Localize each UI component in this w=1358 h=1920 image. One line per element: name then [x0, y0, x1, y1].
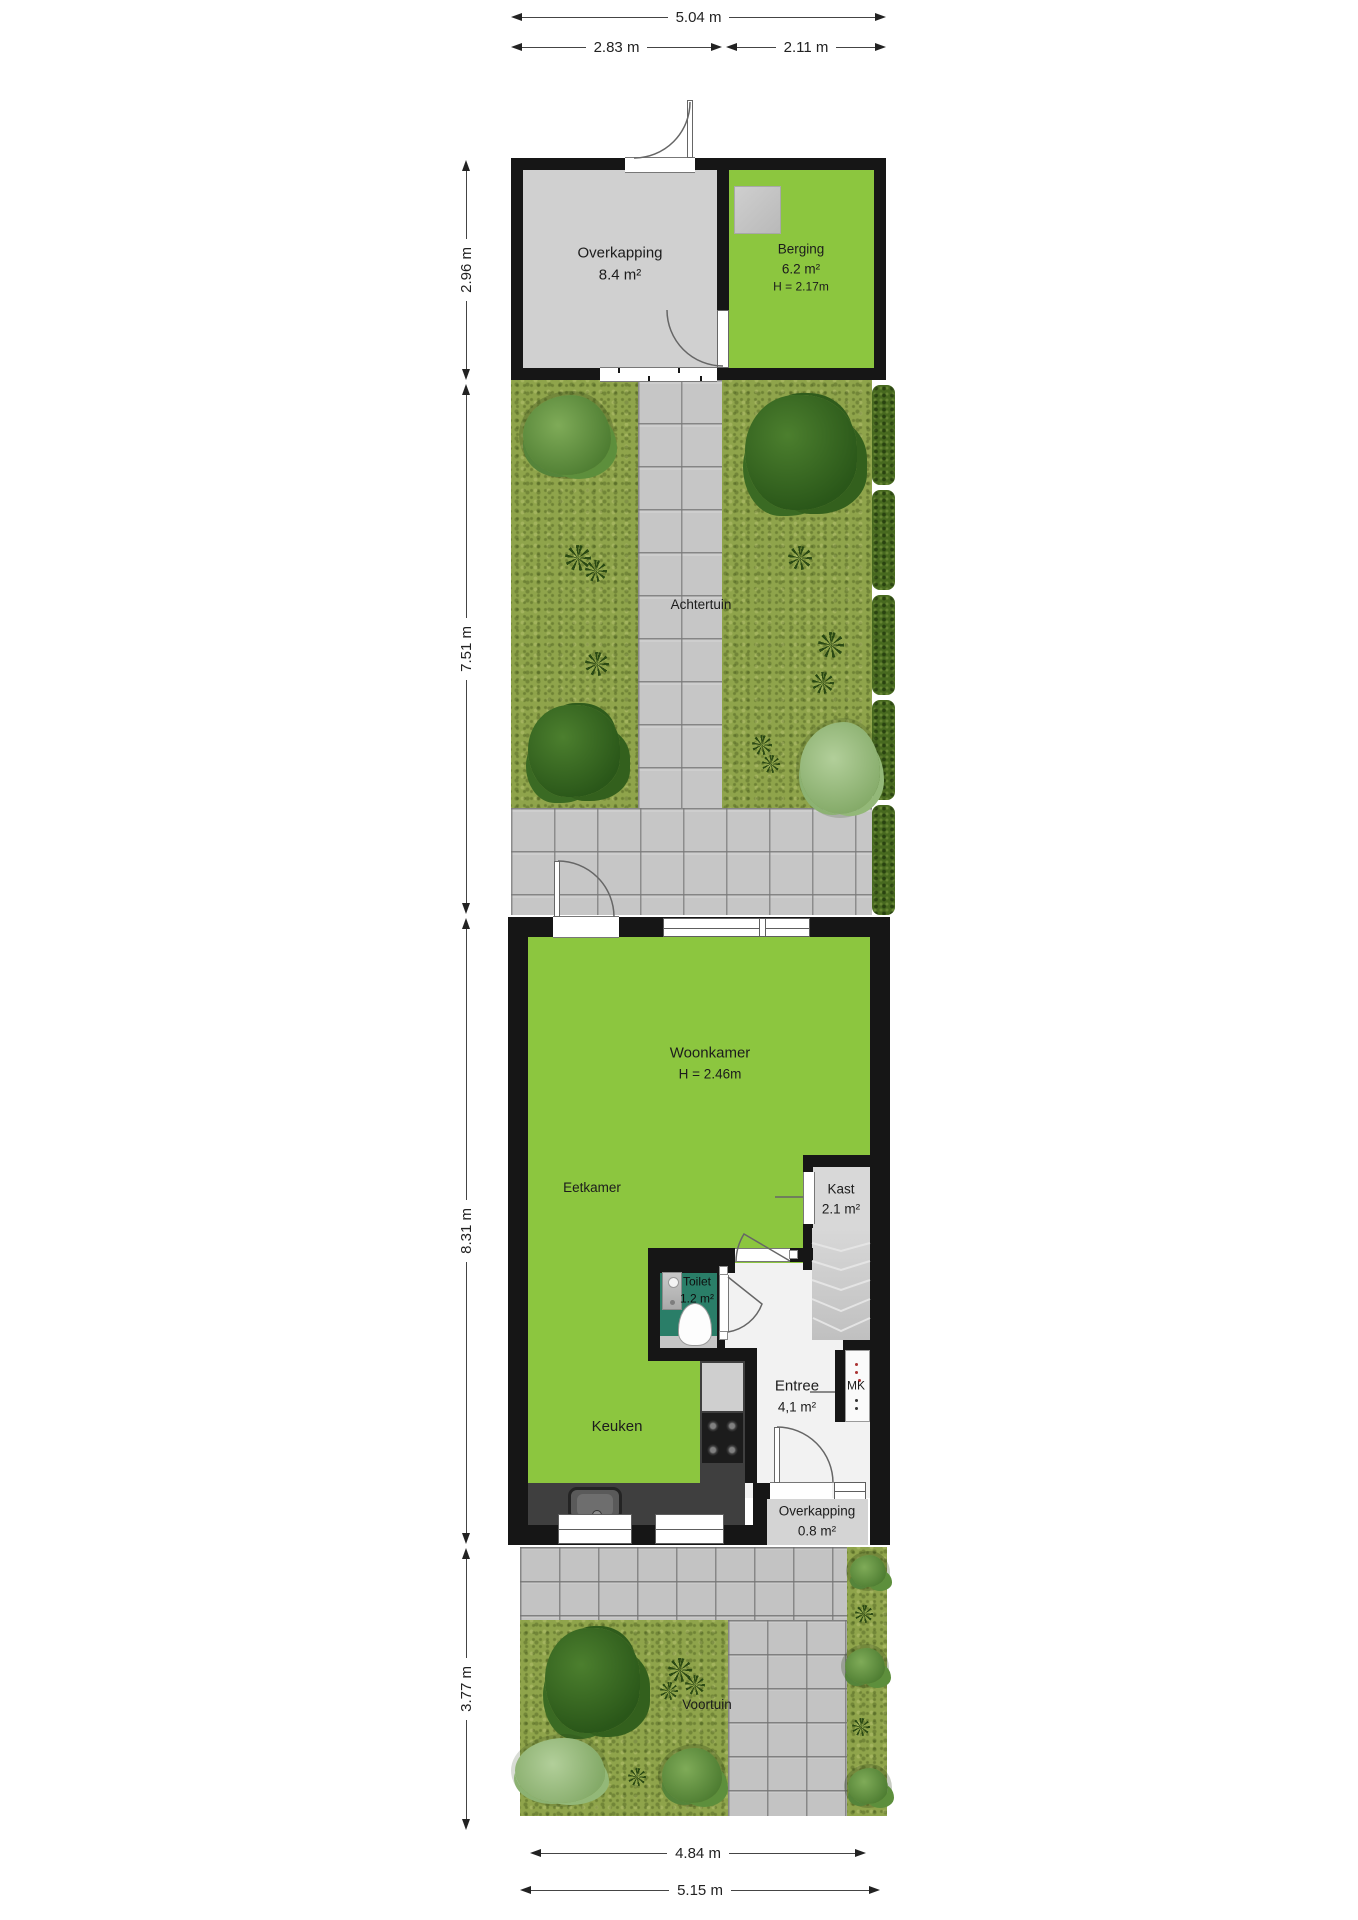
living-room-window	[663, 918, 810, 937]
house-wall-right	[870, 917, 890, 1545]
fern-plant	[800, 722, 880, 814]
room-label-entree: Entree 4,1 m²	[775, 1375, 819, 1416]
room-label-achtertuin: Achtertuin	[671, 595, 732, 615]
dim-left-voortuin: 3.77 m	[455, 1548, 477, 1830]
dim-label: 4.84 m	[667, 1845, 729, 1862]
arrow-right-icon	[875, 43, 886, 51]
shed-wall-right	[874, 158, 886, 380]
back-door-leaf	[554, 861, 560, 917]
window-mullion	[759, 919, 766, 936]
floorplan-canvas: 5.04 m 2.83 m 2.11 m 2.96 m 7.51 m 8.31 …	[0, 0, 1358, 1920]
arrow-right-icon	[869, 1886, 880, 1894]
kitchen-counter-vertical	[700, 1361, 745, 1483]
room-label-voortuin: Voortuin	[682, 1695, 732, 1715]
stair-wall-stub	[843, 1340, 870, 1350]
grass-tuft	[852, 1718, 870, 1736]
room-label-mk: MK	[847, 1377, 865, 1394]
plant	[848, 1768, 888, 1804]
dim-top-total: 5.04 m	[511, 10, 886, 24]
room-label-eetkamer: Eetkamer	[563, 1178, 621, 1198]
berging-door-leaf	[717, 310, 729, 368]
grass-tuft	[628, 1768, 646, 1786]
arrow-right-icon	[711, 43, 722, 51]
grass-tuft	[585, 652, 609, 676]
front-path-top	[520, 1547, 847, 1620]
arrow-down-icon	[462, 903, 470, 914]
arrow-down-icon	[462, 1533, 470, 1544]
dim-label: 8.31 m	[458, 1200, 475, 1262]
arrow-down-icon	[462, 1819, 470, 1830]
shed-wall-bottom	[717, 368, 886, 380]
shed-open-side	[600, 367, 717, 382]
woonkamer-entree-doorway	[735, 1248, 790, 1262]
dim-label: 2.83 m	[586, 39, 648, 56]
grass-tuft	[855, 1605, 873, 1623]
toilet-doorway	[719, 1275, 729, 1332]
garden-terrace	[511, 808, 872, 915]
kitchen-window	[558, 1514, 632, 1544]
plant	[662, 1748, 722, 1803]
kast-wall-top	[803, 1155, 870, 1167]
front-door-leaf	[774, 1427, 780, 1483]
sink-bowl-icon	[668, 1277, 679, 1288]
arrow-up-icon	[462, 384, 470, 395]
worktop	[702, 1363, 743, 1411]
grass-tuft	[660, 1682, 678, 1700]
dim-left-achtertuin: 7.51 m	[455, 384, 477, 914]
arrow-down-icon	[462, 369, 470, 380]
dim-label: 5.04 m	[668, 9, 730, 26]
dim-top-right: 2.11 m	[726, 40, 886, 54]
toilet-wall-bottom	[648, 1348, 757, 1361]
shed-wall-top	[511, 158, 886, 170]
bush	[528, 705, 620, 797]
front-path-side	[728, 1620, 847, 1816]
tap-icon	[670, 1300, 675, 1305]
bush	[745, 395, 857, 510]
dim-label: 2.96 m	[458, 239, 475, 301]
kitchen-window	[655, 1514, 724, 1544]
bush	[545, 1628, 640, 1733]
grass-tuft	[762, 755, 780, 773]
house-wall-bottom	[508, 1525, 770, 1545]
arrow-right-icon	[875, 13, 886, 21]
arrow-left-icon	[511, 13, 522, 21]
arrow-up-icon	[462, 918, 470, 929]
door-jamb	[789, 1250, 798, 1259]
grass-tuft	[812, 672, 834, 694]
arrow-right-icon	[855, 1849, 866, 1857]
shed-wall-bottom	[511, 368, 600, 380]
dim-label: 5.15 m	[669, 1882, 731, 1899]
dim-top-left: 2.83 m	[511, 40, 722, 54]
room-label-toilet: Toilet 1.2 m²	[680, 1274, 714, 1309]
storage-box	[734, 186, 781, 234]
mk-wall	[835, 1350, 845, 1422]
kast-door	[803, 1172, 815, 1224]
grass-tuft	[685, 1675, 705, 1695]
room-label-berging: Berging 6.2 m² H = 2.17m	[773, 240, 829, 297]
fern-plant	[515, 1738, 605, 1803]
dim-left-house: 8.31 m	[455, 918, 477, 1544]
keuken-entree-wall	[745, 1361, 757, 1483]
shed-wall-left	[511, 158, 523, 380]
arrow-left-icon	[530, 1849, 541, 1857]
back-door-threshold	[553, 916, 619, 938]
grass-tuft	[818, 632, 844, 658]
arrow-up-icon	[462, 1548, 470, 1559]
room-label-overkapping-top: Overkapping 8.4 m²	[577, 242, 662, 286]
room-label-woonkamer: Woonkamer H = 2.46m	[670, 1042, 751, 1083]
shed-door-threshold	[625, 157, 695, 173]
front-door-threshold	[770, 1482, 832, 1500]
room-label-overkapping-front: Overkapping 0.8 m²	[779, 1501, 856, 1540]
staircase	[812, 1228, 870, 1340]
dim-label: 2.11 m	[776, 39, 837, 56]
grass-tuft	[788, 546, 812, 570]
grass-tuft	[752, 735, 772, 755]
arrow-left-icon	[520, 1886, 531, 1894]
meter-dots	[855, 1363, 858, 1366]
grass-tuft	[585, 560, 607, 582]
gas-hob	[702, 1413, 743, 1463]
dim-left-berging: 2.96 m	[455, 160, 477, 380]
arrow-left-icon	[511, 43, 522, 51]
shed-door-leaf	[687, 100, 693, 158]
door-jamb	[719, 1331, 728, 1340]
house-wall-left	[508, 917, 528, 1545]
arrow-left-icon	[726, 43, 737, 51]
meter-dots	[855, 1399, 858, 1402]
dim-bottom-inner: 4.84 m	[530, 1846, 866, 1860]
arrow-up-icon	[462, 160, 470, 171]
door-jamb	[719, 1266, 728, 1275]
plant	[850, 1555, 886, 1587]
dim-label: 7.51 m	[458, 618, 475, 680]
dim-label: 3.77 m	[458, 1658, 475, 1720]
room-label-keuken: Keuken	[592, 1416, 643, 1438]
room-label-kast: Kast 2.1 m²	[822, 1179, 860, 1218]
toilet-wall-left	[648, 1248, 660, 1361]
plant	[845, 1648, 885, 1684]
dim-bottom-outer: 5.15 m	[520, 1883, 880, 1897]
front-sidelight-window	[834, 1482, 866, 1500]
plant	[523, 395, 611, 475]
hedge	[872, 385, 895, 915]
shed-divider-wall	[717, 170, 729, 310]
